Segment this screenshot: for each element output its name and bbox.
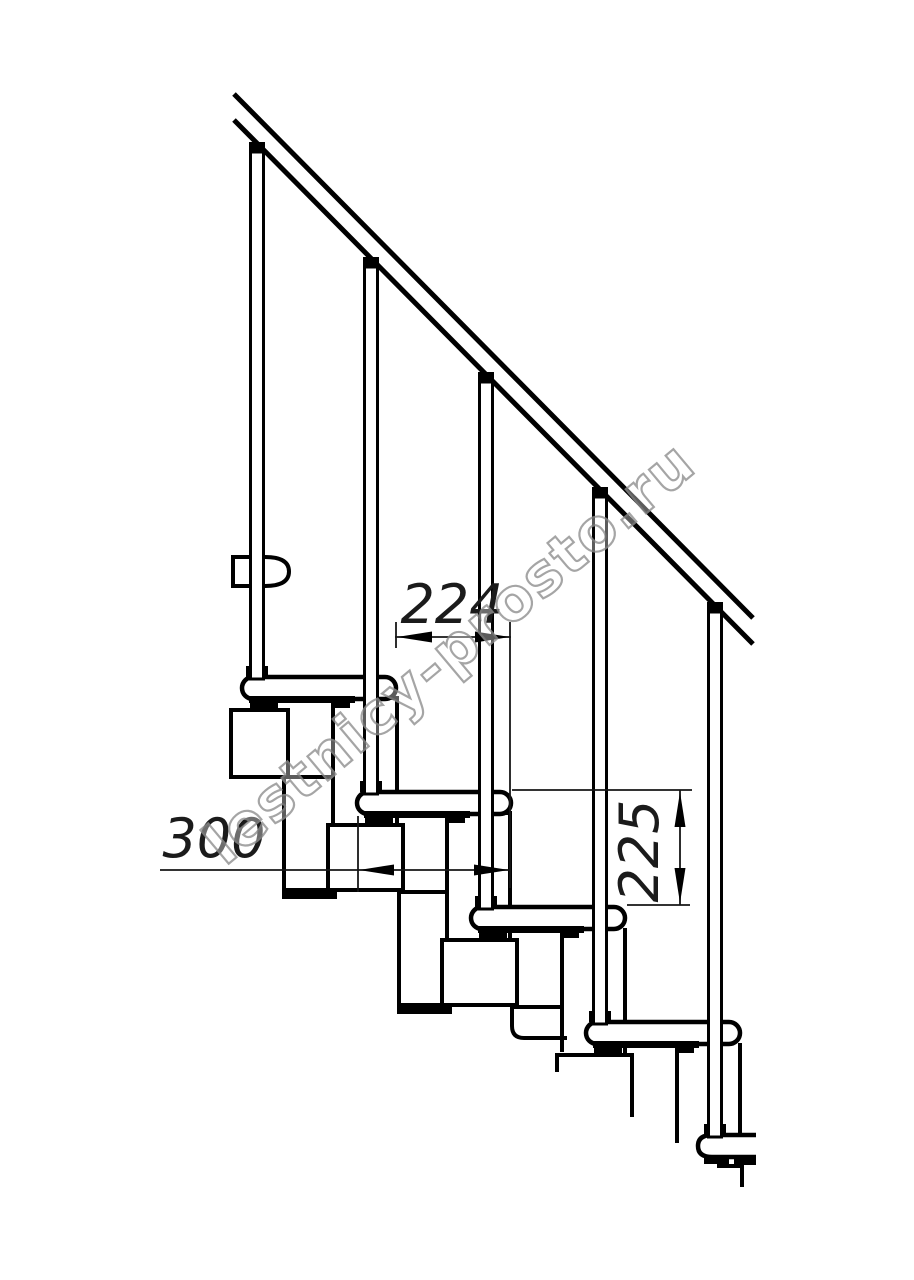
base-module-cut [557,1055,632,1117]
arrow-down-icon [675,868,686,903]
baluster-post [246,142,268,679]
break-step-line [717,1166,742,1187]
arrow-up-icon [675,792,686,827]
tread-cut [698,1135,756,1157]
baluster-tube [709,612,722,1137]
base-module [442,940,517,1005]
baluster-post [704,602,726,1137]
rear-module-cut [512,1007,567,1038]
baluster-tube [594,497,607,1024]
baluster-tube [251,152,264,679]
dimension-rise-label: 225 [608,799,671,902]
base-module [328,825,403,890]
staircase-technical-drawing: 224 300 225 lestnicy-prosto.ru [0,0,914,1280]
staircase-drawing-page: 224 300 225 lestnicy-prosto.ru [0,0,914,1280]
